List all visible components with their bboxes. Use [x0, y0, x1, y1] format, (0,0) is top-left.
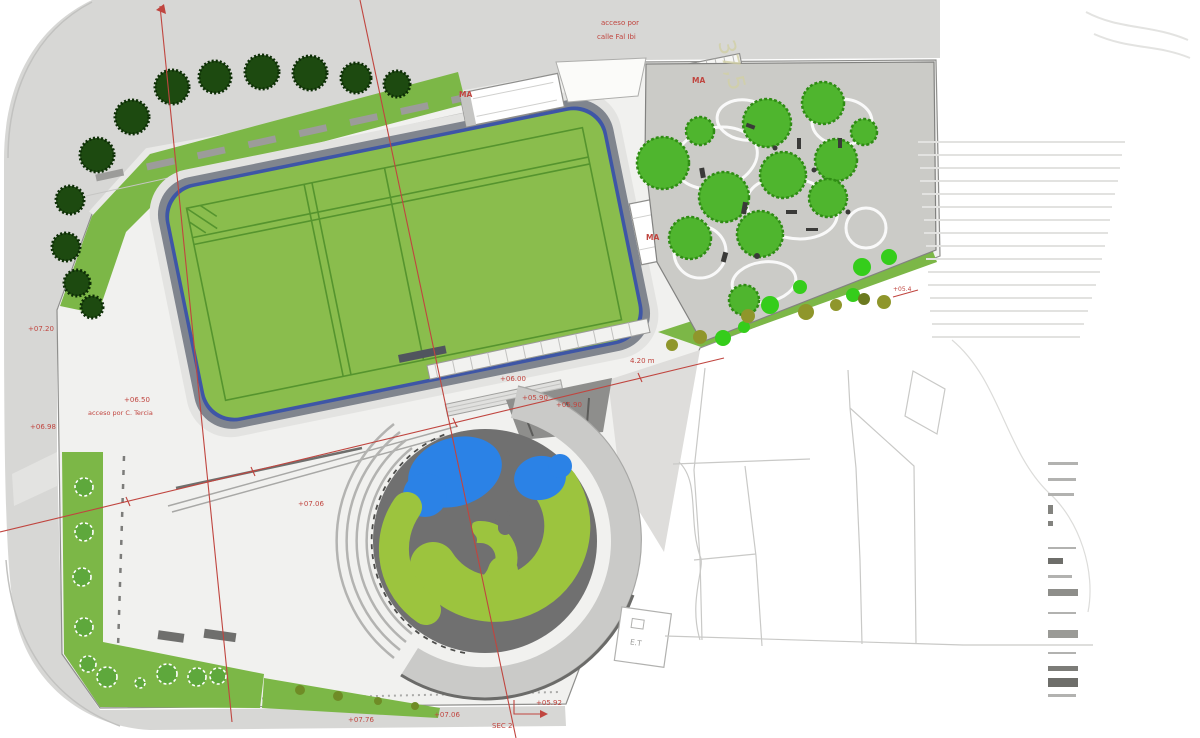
parcel-line: [850, 408, 916, 644]
flower-bush-icon: [75, 618, 93, 636]
flower-bush-icon: [75, 478, 93, 496]
tree-icon: [669, 217, 711, 259]
equipment-icon: [797, 138, 801, 149]
hillside-hatch: [918, 12, 1190, 337]
tree-icon: [64, 270, 90, 296]
parcel-line: [694, 554, 756, 560]
equipment-icon: [773, 146, 778, 151]
flower-bush-icon: [135, 678, 145, 688]
legend-row: [1048, 547, 1076, 549]
flower-bush-icon: [188, 668, 206, 686]
equipment-icon: [786, 210, 797, 214]
tree-icon: [760, 152, 806, 198]
legend-row: [1048, 589, 1078, 596]
legend-row: [1048, 630, 1078, 638]
building-label: MA: [692, 76, 705, 85]
legend-row: [1048, 612, 1076, 614]
legend-row: [1048, 462, 1078, 465]
legend-row: [1048, 652, 1076, 654]
tree-icon: [686, 117, 714, 145]
tree-icon: [699, 172, 749, 222]
playground-pavement: [645, 62, 936, 342]
bush-icon: [798, 304, 814, 320]
equipment-icon: [846, 210, 851, 215]
transformer-box: E.T: [614, 607, 671, 667]
flower-bush-icon: [210, 668, 226, 684]
bush-icon: [877, 295, 891, 309]
transformer-label: E.T: [629, 637, 642, 648]
elevation-label: +07.06: [298, 500, 324, 508]
dimension-label: +06.00: [500, 375, 526, 383]
tree-icon: [155, 70, 189, 104]
flower-bush-icon: [73, 568, 91, 586]
legend-row: [1048, 505, 1053, 514]
bush-icon: [830, 299, 842, 311]
bush-icon: [846, 288, 860, 302]
tree-icon: [637, 137, 689, 189]
elevation-label: +07.20: [28, 325, 54, 333]
flower-bush-icon: [75, 523, 93, 541]
legend-row: [1048, 694, 1076, 697]
parcel-line: [848, 370, 862, 644]
cadastral-parcels: [665, 340, 1093, 646]
flower-bush-icon: [157, 664, 177, 684]
elevation-label: +07.06: [434, 711, 460, 719]
section-label: SEC 2: [492, 722, 512, 730]
tree-icon: [802, 82, 844, 124]
tree-icon: [80, 138, 114, 172]
tree-icon: [81, 296, 103, 318]
bush-icon: [411, 702, 419, 710]
tree-icon: [851, 119, 877, 145]
contour-line: [952, 340, 1090, 612]
parcel-line: [745, 466, 762, 646]
bush-icon: [741, 309, 755, 323]
elevation-label: +05.92: [536, 699, 562, 707]
parcel-line: [905, 371, 945, 434]
bush-icon: [295, 685, 305, 695]
legend-row: [1048, 678, 1078, 687]
bush-icon: [333, 691, 343, 701]
transformer-outline: [614, 607, 671, 667]
tree-icon: [115, 100, 149, 134]
parcel-line: [665, 636, 1093, 645]
parcel-line: [673, 459, 810, 464]
bush-icon: [693, 330, 707, 344]
equipment-icon: [838, 138, 842, 148]
flower-bush-icon: [97, 667, 117, 687]
entrance-wedge: [556, 58, 646, 102]
tree-icon: [737, 211, 783, 257]
legend: [1048, 462, 1078, 697]
legend-row: [1048, 493, 1074, 496]
pond-small-lobe: [548, 454, 572, 478]
flower-bush-icon: [80, 656, 96, 672]
legend-row: [1048, 521, 1053, 526]
legend-row: [1048, 666, 1078, 671]
dimension-label: +05.90: [556, 401, 582, 409]
equipment-icon: [754, 253, 760, 259]
building-label: MA: [459, 90, 472, 99]
bush-icon: [793, 280, 807, 294]
tree-icon: [384, 71, 410, 97]
legend-row: [1048, 575, 1072, 578]
bush-icon: [715, 330, 731, 346]
bush-icon: [881, 249, 897, 265]
tree-icon: [199, 61, 231, 93]
equipment-icon: [806, 228, 818, 231]
elevation-label: +06.98: [30, 423, 56, 431]
equipment-icon: [812, 168, 817, 173]
tree-icon: [56, 186, 84, 214]
parcel-line: [694, 368, 705, 640]
tree-icon: [52, 233, 80, 261]
bush-icon: [374, 697, 382, 705]
tree-icon: [341, 63, 371, 93]
parcel-line: [679, 462, 701, 640]
dimension-label: +05.90: [522, 394, 548, 402]
elevation-label: +06.50: [124, 396, 150, 404]
elevation-label: +07.76: [348, 716, 374, 724]
bush-icon: [666, 339, 678, 351]
tree-icon: [245, 55, 279, 89]
legend-row: [1048, 558, 1063, 564]
site-plan-canvas: E.T: [0, 0, 1200, 738]
dimension-label: 4.20 m: [630, 357, 655, 365]
site-plan-page: E.T: [0, 0, 1200, 738]
tree-icon: [293, 56, 327, 90]
access-label-top-2: calle Fal Ibi: [597, 33, 636, 41]
bush-icon: [761, 296, 779, 314]
bush-icon: [853, 258, 871, 276]
access-label-plaza: acceso por C. Tercia: [88, 409, 153, 417]
hatch-lines: [918, 142, 1125, 337]
corner-marks-faint: [1086, 12, 1190, 58]
access-label-top-1: acceso por: [601, 19, 639, 27]
legend-row: [1048, 478, 1076, 481]
building-label: MA: [646, 233, 659, 242]
tree-icon: [809, 179, 847, 217]
tree-icon: [743, 99, 791, 147]
bush-icon: [858, 293, 870, 305]
elevation-label: +05.4: [893, 286, 912, 293]
tree-icon: [815, 139, 857, 181]
